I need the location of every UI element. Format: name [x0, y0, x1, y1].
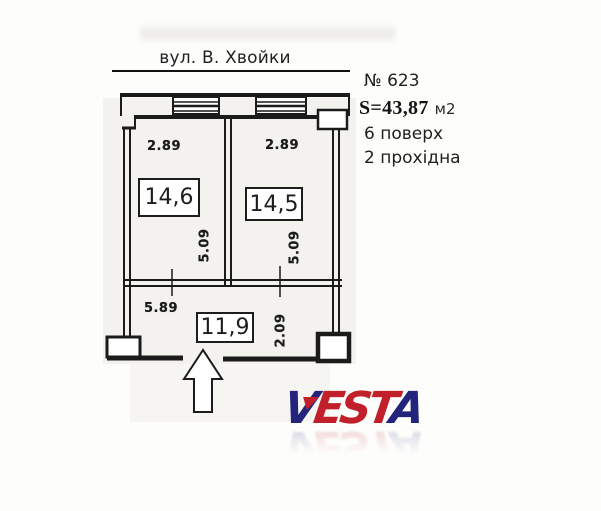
dim-room-right-width: 2.89 [257, 138, 307, 153]
dim-room-left-width: 2.89 [139, 139, 189, 154]
vesta-logo-reflection: VESTA [284, 427, 421, 465]
listing-number: № 623 [364, 71, 420, 91]
dim-room-bottom-width: 5.89 [136, 301, 186, 316]
area-box-room-right: 14,5 [245, 187, 303, 221]
window-left [173, 97, 219, 114]
window-right [256, 97, 306, 114]
listing-area: S=43,87 м2 [359, 97, 455, 120]
listing-area-unit: м2 [435, 100, 456, 118]
listing-layout: 2 прохідна [364, 148, 461, 168]
vesta-logo: VESTA VESTA [284, 390, 484, 460]
dim-room-bottom-depth: 2.09 [274, 306, 289, 356]
listing-area-value: S=43,87 [359, 97, 429, 120]
bottom-right-pier [318, 334, 349, 361]
dim-room-left-depth: 5.09 [198, 221, 213, 271]
area-box-room-left: 14,6 [138, 178, 200, 217]
area-value-room-bottom: 11,9 [201, 315, 250, 340]
bottom-left-pier [107, 337, 140, 357]
area-value-room-left: 14,6 [145, 185, 194, 210]
dim-room-right-depth: 5.09 [288, 223, 303, 273]
area-box-room-bottom: 11,9 [196, 312, 254, 343]
listing-floor: 6 поверх [364, 124, 443, 144]
area-value-room-right: 14,5 [250, 192, 299, 217]
top-right-pier [318, 110, 347, 129]
